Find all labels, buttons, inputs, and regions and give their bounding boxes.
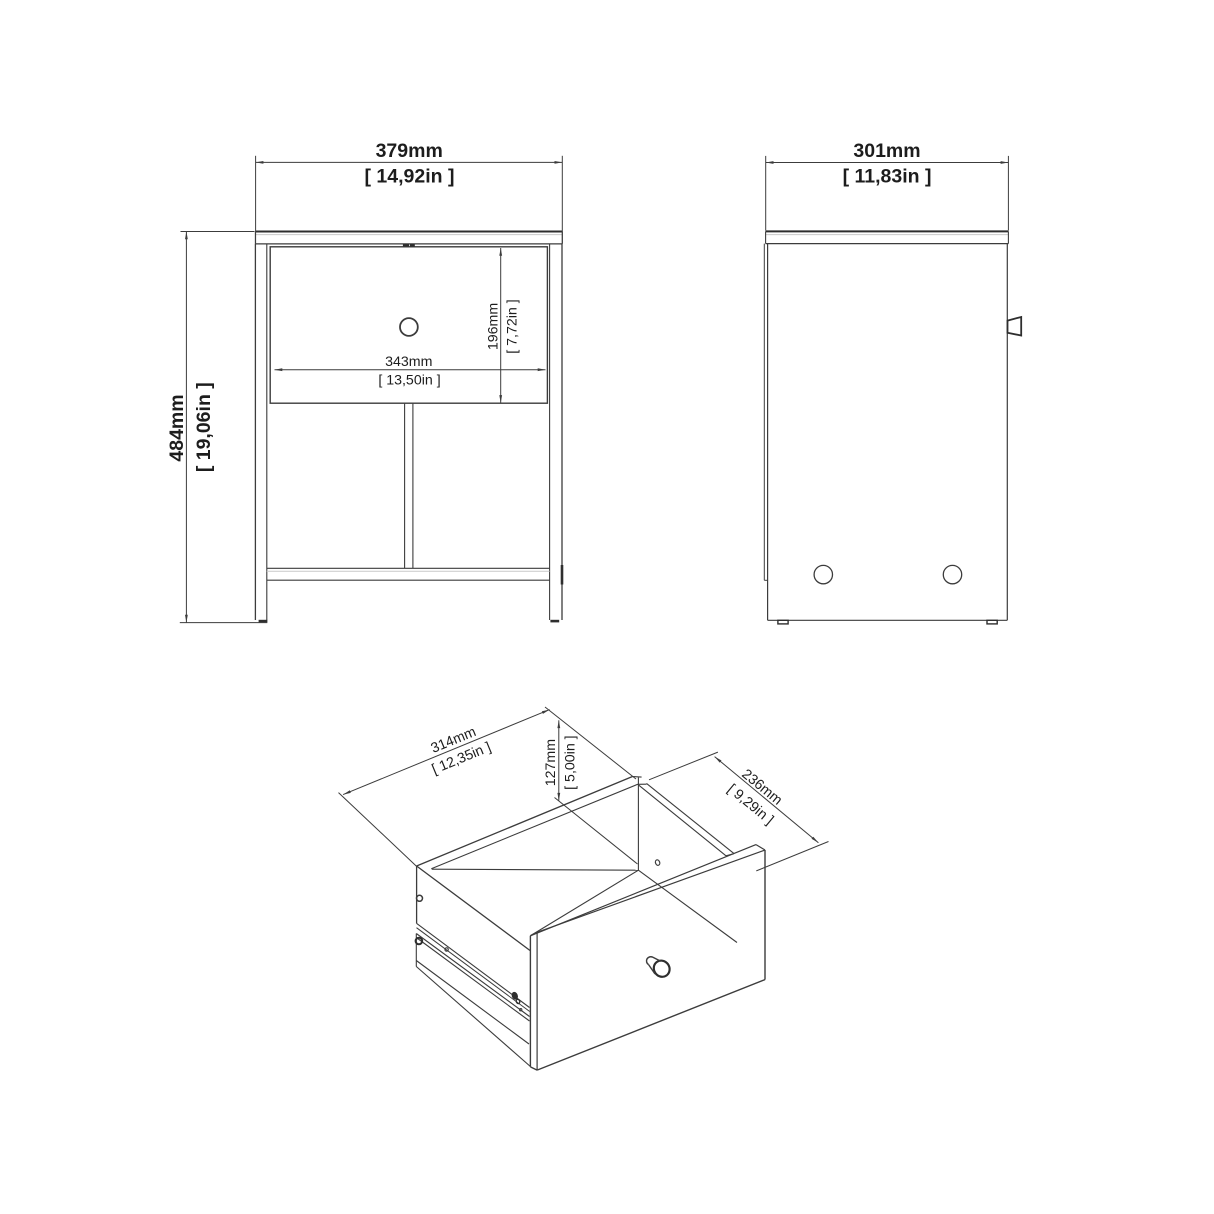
svg-text:[ 14,92in ]: [ 14,92in ] (365, 165, 455, 187)
svg-text:484mm: 484mm (166, 394, 188, 461)
svg-text:379mm: 379mm (376, 140, 443, 162)
svg-text:343mm: 343mm (385, 354, 432, 370)
svg-text:[ 7,72in ]: [ 7,72in ] (505, 299, 521, 353)
svg-text:[ 11,83in ]: [ 11,83in ] (843, 165, 932, 187)
svg-text:196mm: 196mm (486, 303, 502, 350)
svg-text:[ 5,00in ]: [ 5,00in ] (562, 735, 578, 789)
svg-text:301mm: 301mm (853, 140, 920, 162)
svg-text:[ 19,06in ]: [ 19,06in ] (193, 382, 215, 472)
svg-text:127mm: 127mm (543, 739, 559, 786)
svg-text:[ 13,50in ]: [ 13,50in ] (378, 372, 440, 388)
